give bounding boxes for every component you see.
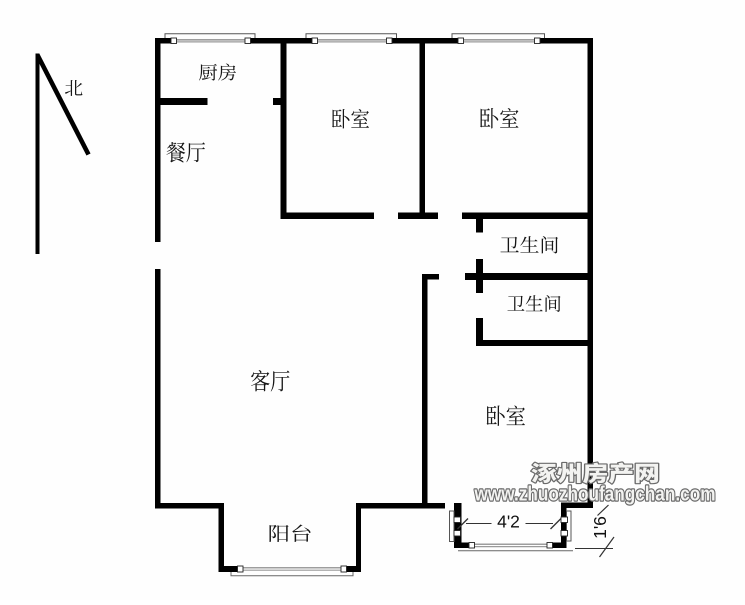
svg-text:4'2: 4'2 [497, 512, 520, 532]
svg-text:www.zhuozhoufangchan.com: www.zhuozhoufangchan.com [474, 483, 716, 506]
svg-text:1'6: 1'6 [590, 516, 610, 539]
